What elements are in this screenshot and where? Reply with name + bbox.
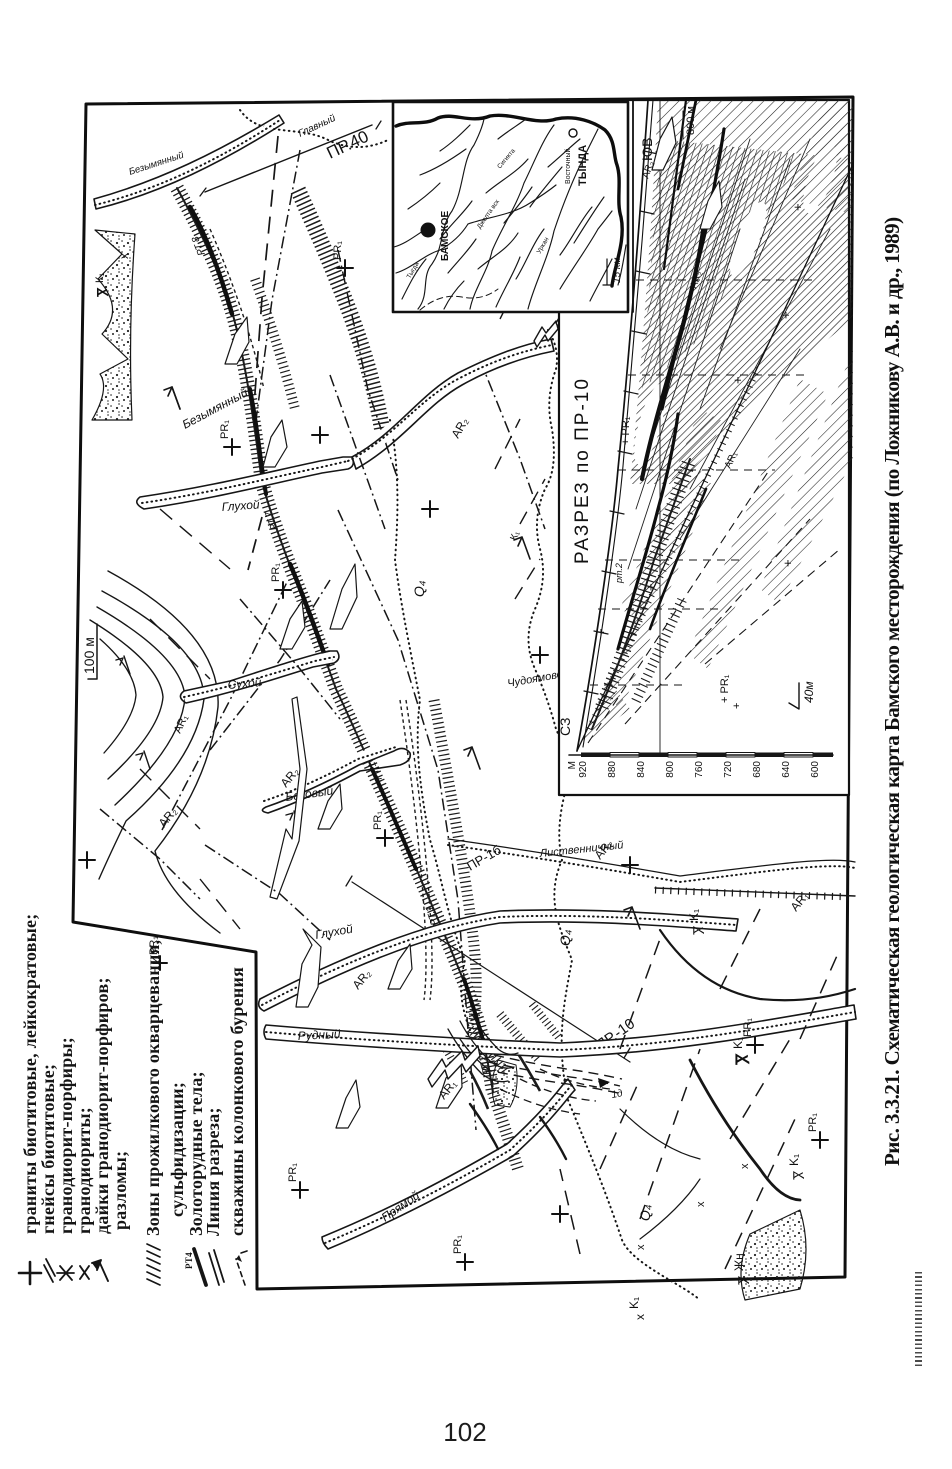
- svg-text:920: 920: [578, 761, 589, 778]
- svg-text:рт.2: рт.2: [614, 563, 624, 584]
- svg-text:800 м: 800 м: [685, 106, 697, 135]
- svg-text:сульфидизации;: сульфидизации;: [167, 1082, 187, 1217]
- svg-text:K₁: K₁: [731, 1037, 745, 1049]
- svg-text:скважины колонкового бурения: скважины колонкового бурения: [227, 967, 247, 1236]
- svg-text:РТ4: РТ4: [184, 1252, 194, 1269]
- svg-text:ТЫНДА: ТЫНДА: [577, 145, 589, 186]
- svg-text:БАМСКОЕ: БАМСКОЕ: [440, 211, 451, 261]
- svg-text:PR₁: PR₁: [807, 1113, 819, 1132]
- svg-text:Q₄: Q₄: [411, 580, 427, 597]
- svg-text:+: +: [731, 703, 743, 709]
- svg-text:гнейсы биотитовые;: гнейсы биотитовые;: [38, 1064, 58, 1234]
- svg-text:Ⴟ: Ⴟ: [737, 1275, 752, 1285]
- svg-text:дайки гранодиорит-порфиров;: дайки гранодиорит-порфиров;: [92, 977, 112, 1234]
- svg-text:PR₁: PR₁: [287, 1163, 299, 1182]
- svg-text:М: М: [567, 761, 578, 769]
- svg-text:+ PR₁: + PR₁: [620, 416, 632, 445]
- svg-text:+: +: [778, 311, 793, 319]
- svg-text:680: 680: [752, 761, 763, 778]
- svg-text:Ⴟ: Ⴟ: [96, 287, 111, 297]
- svg-text:760: 760: [694, 761, 705, 778]
- svg-text:+: +: [790, 203, 805, 211]
- svg-text:гранодиорит-порфиры;: гранодиорит-порфиры;: [56, 1037, 76, 1234]
- svg-text:100 м: 100 м: [81, 637, 97, 674]
- svg-text:+: +: [780, 559, 795, 567]
- svg-text:800: 800: [665, 761, 676, 778]
- svg-text:x: x: [695, 1201, 707, 1207]
- svg-text:x: x: [633, 1314, 647, 1320]
- svg-text:x: x: [117, 253, 131, 259]
- svg-text:+ PR₁: + PR₁: [719, 674, 731, 703]
- svg-text:РАЗРЕЗ по ПР-10: РАЗРЕЗ по ПР-10: [572, 377, 593, 564]
- svg-text:ЮВ: ЮВ: [639, 138, 655, 161]
- svg-text:Q₄: Q₄: [637, 1204, 653, 1221]
- svg-text:К₁: К₁: [94, 273, 106, 283]
- svg-text:40м: 40м: [802, 681, 816, 703]
- svg-text:Сухой: Сухой: [227, 675, 262, 692]
- svg-text:880: 880: [607, 761, 618, 778]
- svg-text:720: 720: [723, 761, 734, 778]
- svg-text:K₁: K₁: [787, 1154, 801, 1166]
- svg-text:Восточный: Восточный: [564, 149, 572, 184]
- svg-text:СЗ: СЗ: [557, 718, 573, 736]
- svg-text:Глухой: Глухой: [221, 497, 260, 514]
- svg-text:PR₁: PR₁: [742, 1018, 754, 1037]
- svg-text:PR₁: PR₁: [219, 420, 231, 439]
- svg-text:K₁: K₁: [687, 909, 701, 921]
- svg-text:x: x: [635, 1244, 647, 1250]
- svg-text:K₁: K₁: [627, 1297, 641, 1309]
- svg-text:Ⴟ: Ⴟ: [692, 925, 707, 935]
- svg-text:Жн: Жн: [732, 1253, 746, 1271]
- svg-text:+: +: [643, 583, 658, 591]
- svg-text:Q₄: Q₄: [557, 929, 573, 946]
- svg-text:граниты биотитовые, лейкократо: граниты биотитовые, лейкократовые;: [20, 913, 40, 1234]
- svg-text:15 км: 15 км: [612, 257, 623, 283]
- svg-text:Ⴟ: Ⴟ: [792, 1170, 807, 1180]
- svg-text:PR₁: PR₁: [372, 811, 384, 830]
- svg-text:Рудный: Рудный: [297, 1027, 341, 1043]
- svg-text:+: +: [593, 628, 608, 636]
- svg-text:Рис. 3.3.21. Схематическая гео: Рис. 3.3.21. Схематическая геологическая…: [880, 217, 904, 1166]
- svg-text:PR₁: PR₁: [452, 1235, 464, 1254]
- svg-text:600: 600: [810, 761, 821, 778]
- svg-text:Линия разреза;: Линия разреза;: [203, 1107, 223, 1236]
- svg-text:гранодиориты;: гранодиориты;: [74, 1107, 94, 1234]
- svg-text:x: x: [739, 1163, 751, 1169]
- svg-text:PR₁: PR₁: [332, 241, 344, 260]
- svg-text:разломы;: разломы;: [110, 1151, 130, 1230]
- svg-text:+: +: [730, 376, 745, 384]
- svg-text:PR₁: PR₁: [270, 563, 282, 582]
- svg-text:Зоны прожилкового окварцевания: Зоны прожилкового окварцевания,: [143, 940, 163, 1236]
- svg-text:Ⴟ: Ⴟ: [735, 1053, 753, 1065]
- svg-text:640: 640: [781, 761, 792, 778]
- svg-text:840: 840: [636, 761, 647, 778]
